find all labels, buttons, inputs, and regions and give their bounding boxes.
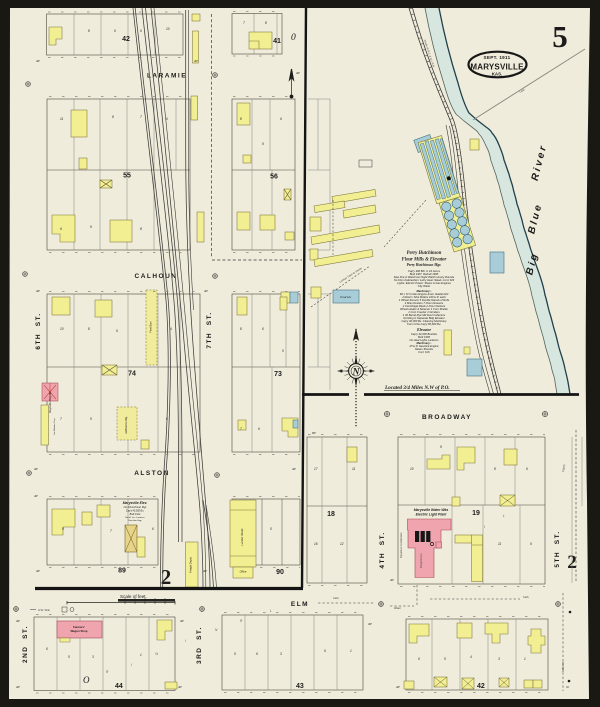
svg-text:Marysville Water Wks: Marysville Water Wks [414, 508, 449, 512]
svg-text:6: 6 [256, 652, 258, 656]
svg-text:40': 40' [178, 685, 182, 689]
svg-text:41: 41 [273, 38, 281, 45]
svg-text:Marysville Elev.: Marysville Elev. [123, 501, 147, 505]
svg-text:10: 10 [166, 27, 170, 31]
svg-text:19: 19 [472, 510, 480, 517]
svg-text:40': 40' [36, 59, 40, 63]
svg-text:6: 6 [262, 327, 264, 331]
svg-text:40': 40' [34, 467, 38, 471]
svg-text:30': 30' [36, 569, 40, 573]
svg-text:40': 40' [16, 685, 20, 689]
svg-text:Flour Mills & Elevator: Flour Mills & Elevator [402, 258, 447, 263]
svg-text:5: 5 [444, 657, 446, 661]
svg-text:10TH ST.: 10TH ST. [561, 661, 565, 672]
svg-text:6: 6 [116, 329, 118, 333]
svg-text:40': 40' [296, 71, 300, 75]
svg-text:55: 55 [123, 173, 131, 180]
svg-text:8: 8 [88, 327, 90, 331]
svg-text:80': 80' [312, 431, 316, 435]
svg-text:ALSTON: ALSTON [134, 470, 170, 477]
svg-text:7: 7 [110, 529, 112, 533]
svg-text:7: 7 [240, 427, 242, 431]
svg-text:ELM: ELM [291, 601, 309, 608]
svg-text:6: 6 [140, 29, 142, 33]
svg-text:73: 73 [274, 371, 282, 378]
svg-text:Elevator: Elevator [416, 327, 431, 332]
svg-text:Jos.Windau Prop.: Jos.Windau Prop. [54, 417, 56, 435]
svg-text:3RD ST.: 3RD ST. [196, 626, 203, 664]
svg-text:10: 10 [60, 327, 64, 331]
svg-text:KAS.: KAS. [492, 72, 503, 77]
svg-text:Corn Cribs Cap'y 80,000 Bu.: Corn Cribs Cap'y 80,000 Bu. [407, 322, 441, 326]
svg-text:Office: Office [240, 570, 247, 574]
svg-text:Freight Depot: Freight Depot [189, 557, 193, 573]
svg-text:43: 43 [296, 683, 304, 690]
svg-text:6: 6 [166, 117, 168, 121]
svg-text:Cath.: Cath. [333, 596, 339, 600]
svg-text:MARYSVILLE: MARYSVILLE [470, 62, 524, 71]
svg-text:6: 6 [166, 417, 168, 421]
svg-text:5: 5 [68, 655, 70, 659]
svg-text:6: 6 [418, 657, 420, 661]
svg-text:CALHOUN: CALHOUN [135, 273, 178, 280]
svg-text:Perry Hutchinson: Perry Hutchinson [407, 251, 442, 256]
svg-text:8: 8 [88, 29, 90, 33]
svg-text:40': 40' [396, 685, 400, 689]
svg-text:40': 40' [194, 59, 198, 63]
svg-text:BROADWAY: BROADWAY [422, 414, 472, 421]
svg-text:5TH ST.: 5TH ST. [554, 530, 561, 567]
svg-text:2: 2 [161, 565, 172, 589]
svg-text:SEPT. 1911: SEPT. 1911 [483, 55, 510, 60]
svg-text:30': 30' [368, 622, 372, 626]
svg-text:6: 6 [114, 29, 116, 33]
svg-text:18: 18 [327, 511, 335, 518]
svg-text:11: 11 [60, 117, 64, 121]
svg-text:I: I [185, 639, 186, 643]
svg-text:3: 3 [280, 652, 282, 656]
svg-text:Cath.: Cath. [523, 595, 529, 599]
svg-text:8: 8 [140, 227, 142, 231]
svg-text:3: 3 [498, 657, 500, 661]
svg-text:6TH ST.: 6TH ST. [35, 312, 42, 349]
svg-text:11: 11 [352, 467, 356, 471]
svg-text:40': 40' [204, 289, 208, 293]
svg-text:9: 9 [262, 142, 264, 146]
svg-text:8: 8 [112, 115, 114, 119]
svg-text:42: 42 [122, 36, 130, 43]
svg-text:H.W. Tank: H.W. Tank [38, 608, 50, 612]
svg-text:O: O [83, 675, 90, 685]
svg-text:74: 74 [128, 371, 136, 378]
svg-text:30': 30' [180, 619, 184, 623]
svg-text:Perry Hutchinson Mgr.: Perry Hutchinson Mgr. [407, 263, 442, 267]
svg-text:Gasoline Eng.: Gasoline Eng. [128, 520, 142, 522]
svg-text:5: 5 [90, 417, 92, 421]
svg-text:11: 11 [498, 542, 502, 546]
svg-text:Built 1912: Built 1912 [130, 513, 141, 516]
svg-text:6: 6 [46, 647, 48, 651]
svg-text:12: 12 [340, 542, 344, 546]
svg-text:5: 5 [552, 19, 568, 54]
svg-text:8: 8 [494, 467, 496, 471]
svg-text:1: 1 [140, 653, 142, 657]
svg-text:Water: Water [394, 606, 401, 610]
svg-text:89: 89 [118, 568, 126, 575]
svg-text:4: 4 [470, 655, 472, 659]
svg-text:40': 40' [203, 569, 207, 573]
svg-text:10: 10 [410, 467, 414, 471]
svg-text:40': 40' [292, 467, 296, 471]
svg-text:9: 9 [440, 445, 442, 449]
svg-text:5: 5 [234, 652, 236, 656]
svg-text:40': 40' [16, 619, 20, 623]
svg-text:Lumber Sheds: Lumber Sheds [240, 528, 244, 546]
svg-text:40': 40' [390, 578, 394, 582]
svg-text:7TH ST.: 7TH ST. [206, 311, 213, 348]
svg-text:Located 3/4 Miles N.W of P.O.: Located 3/4 Miles N.W of P.O. [384, 385, 450, 391]
svg-text:9: 9 [62, 527, 64, 531]
svg-text:7: 7 [243, 21, 245, 25]
svg-text:17: 17 [314, 467, 318, 471]
svg-text:Corn Crib: Corn Crib [418, 350, 430, 354]
svg-text:6: 6 [526, 467, 528, 471]
svg-text:44: 44 [115, 683, 123, 690]
svg-text:Marysville Pl'n'g Mill: Marysville Pl'n'g Mill [49, 391, 52, 413]
svg-text:Scale of feet.: Scale of feet. [120, 594, 147, 599]
svg-text:5: 5 [270, 527, 272, 531]
svg-text:0: 0 [291, 33, 296, 43]
svg-text:42: 42 [477, 683, 485, 690]
svg-text:8: 8 [240, 327, 242, 331]
svg-text:4: 4 [170, 327, 172, 331]
svg-text:6: 6 [258, 427, 260, 431]
svg-text:2ND ST.: 2ND ST. [22, 625, 29, 663]
svg-text:9: 9 [90, 225, 92, 229]
svg-text:5: 5 [282, 349, 284, 353]
svg-text:Feed Barn: Feed Barn [150, 321, 153, 333]
svg-text:40': 40' [36, 289, 40, 293]
svg-text:1: 1 [524, 657, 526, 661]
svg-text:6: 6 [152, 527, 154, 531]
svg-text:90: 90 [276, 569, 284, 576]
svg-text:4TH ST.: 4TH ST. [379, 531, 386, 568]
svg-text:Dynamos Condensers: Dynamos Condensers [399, 532, 403, 558]
svg-text:J.H.Churchman Mgr.: J.H.Churchman Mgr. [123, 505, 147, 509]
svg-text:8: 8 [265, 21, 267, 25]
svg-text:City Water: City Water [418, 284, 431, 288]
svg-text:Pump Room: Pump Room [419, 554, 423, 568]
svg-text:6: 6 [60, 227, 62, 231]
svg-text:7: 7 [60, 417, 62, 421]
svg-text:I: I [131, 663, 132, 667]
svg-text:Wagon Shop: Wagon Shop [71, 629, 88, 633]
svg-text:9: 9 [530, 542, 532, 546]
svg-text:8: 8 [240, 117, 242, 121]
svg-text:6: 6 [280, 117, 282, 121]
svg-text:No Ht. Lts: Lanterns: No Ht. Lts: Lanterns [125, 516, 145, 519]
svg-text:7: 7 [140, 115, 142, 119]
svg-text:Electric Light Plant: Electric Light Plant [416, 513, 448, 517]
svg-text:56: 56 [270, 174, 278, 181]
svg-text:40': 40' [34, 494, 38, 498]
svg-text:16: 16 [314, 542, 318, 546]
svg-text:Coal Ho.: Coal Ho. [340, 295, 352, 299]
svg-text:6: 6 [324, 649, 326, 653]
svg-text:Artificial Ice Mfg.: Artificial Ice Mfg. [125, 416, 128, 435]
svg-text:I: I [484, 525, 485, 529]
svg-text:3: 3 [92, 655, 94, 659]
svg-text:N: N [352, 368, 361, 378]
svg-text:1: 1 [350, 649, 352, 653]
svg-text:L: L [270, 609, 272, 613]
svg-text:L: L [503, 514, 505, 518]
